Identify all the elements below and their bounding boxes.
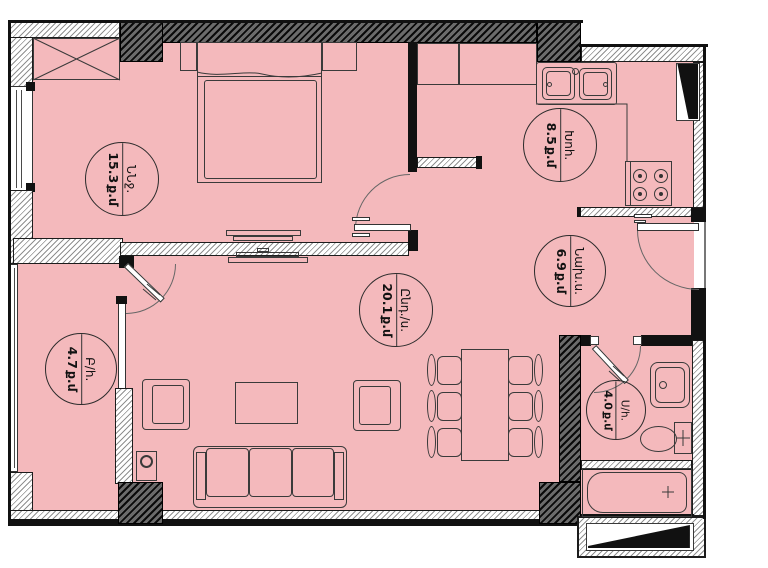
dining-chair-back bbox=[534, 426, 543, 458]
column-bathroom bbox=[539, 482, 581, 524]
burner-dot bbox=[659, 174, 663, 178]
wall-kitchen-bottom-cap bbox=[577, 207, 581, 217]
room-area: 15.3ք.մ bbox=[106, 143, 122, 215]
entrance-door-handle bbox=[634, 220, 646, 223]
wall-balcony-right bbox=[115, 388, 133, 484]
wall-bathroom-top-right bbox=[641, 335, 692, 346]
tv-stand-living bbox=[228, 257, 308, 263]
bathroom-sink-drain-icon bbox=[659, 381, 667, 389]
entrance-door-leaf bbox=[637, 223, 699, 231]
dining-chair bbox=[437, 392, 462, 421]
room-area: 6.9ք.մ bbox=[554, 236, 570, 306]
entrance-threshold-line bbox=[704, 218, 706, 290]
bedroom-door-leaf bbox=[354, 224, 411, 231]
sink-drain-icon bbox=[547, 82, 552, 87]
room-name: Խոհ. bbox=[560, 109, 576, 181]
dining-chair bbox=[437, 428, 462, 457]
shaft-wedge bbox=[587, 524, 692, 549]
outer-edge-right-lower bbox=[703, 288, 706, 519]
wall-bottom-edge bbox=[8, 519, 583, 526]
tv-bedroom bbox=[233, 236, 293, 241]
room-name: Ս/հ. bbox=[616, 381, 631, 439]
vent-shaft-wedge bbox=[677, 64, 698, 119]
sink-faucet-icon bbox=[572, 68, 579, 75]
bedroom-door-handle bbox=[352, 217, 370, 221]
kitchen-cabinet bbox=[417, 43, 459, 85]
bathtub-inner bbox=[587, 472, 687, 513]
column-top-right bbox=[537, 22, 581, 62]
room-area: 4.0ք.մ bbox=[602, 381, 616, 439]
room-label-living-room: Ընդ./ս. 20.1ք.մ bbox=[359, 273, 433, 347]
dining-chair-back bbox=[427, 390, 436, 422]
wall-bathroom-left bbox=[559, 335, 581, 482]
dining-chair bbox=[508, 428, 533, 457]
column-top-left bbox=[120, 22, 163, 62]
room-label-kitchen: Խոհ. 8.5ք.մ bbox=[523, 108, 597, 182]
wall-kitchen-stub bbox=[417, 157, 481, 168]
room-label-hallway: Նախ.ս. 6.9ք.մ bbox=[534, 235, 606, 307]
bed-headboard-line bbox=[197, 76, 322, 77]
nightstand-left bbox=[180, 42, 197, 71]
sofa-cushion bbox=[249, 448, 292, 497]
toilet-bowl bbox=[640, 426, 677, 452]
dining-chair bbox=[508, 392, 533, 421]
room-label-balcony: Բ/հ. 4.7ք.մ bbox=[45, 333, 117, 405]
wall-corner-bottom-left bbox=[10, 472, 33, 512]
sofa-cushion bbox=[292, 448, 334, 497]
room-name: Բ/հ. bbox=[81, 334, 97, 404]
floor-plan: ՆՆջ. 15.3ք.մ Խոհ. 8.5ք.մ Նախ.ս. 6.9ք.մ Ը… bbox=[0, 0, 768, 568]
burner-dot bbox=[638, 192, 642, 196]
wall-kitchen-stub-cap bbox=[476, 156, 482, 169]
coffee-table bbox=[235, 382, 298, 424]
outer-edge-top-right bbox=[579, 44, 708, 47]
dining-chair bbox=[437, 356, 462, 385]
wall-top-kitchen bbox=[581, 46, 706, 62]
stove-edge-line bbox=[630, 161, 631, 206]
heater-dial bbox=[140, 455, 153, 468]
room-label-bedroom: ՆՆջ. 15.3ք.մ bbox=[85, 142, 159, 216]
sofa-armrest bbox=[334, 452, 344, 500]
entrance-door-handle bbox=[634, 214, 652, 218]
wall-top-main bbox=[120, 22, 537, 43]
room-name: ՆՆջ. bbox=[122, 143, 138, 215]
room-name: Ընդ./ս. bbox=[396, 274, 412, 346]
bathroom-door-jamb bbox=[590, 336, 599, 345]
sink-drain-icon bbox=[603, 82, 608, 87]
sofa-cushion bbox=[206, 448, 249, 497]
dining-chair-back bbox=[427, 354, 436, 386]
bedroom-door-handle bbox=[352, 233, 370, 237]
dining-table bbox=[461, 349, 509, 461]
bathroom-door-jamb bbox=[633, 336, 642, 345]
nightstand-right bbox=[322, 42, 357, 71]
dining-chair bbox=[508, 356, 533, 385]
outer-edge-right-upper bbox=[703, 46, 706, 216]
wardrobe bbox=[33, 38, 120, 80]
sofa-armrest bbox=[196, 452, 206, 500]
shaft-box bbox=[586, 523, 694, 551]
dining-chair-back bbox=[427, 426, 436, 458]
exterior-area bbox=[581, 0, 768, 47]
room-area: 20.1ք.մ bbox=[380, 274, 396, 346]
room-name: Նախ.ս. bbox=[570, 236, 586, 306]
wall-balcony-divider bbox=[13, 238, 123, 264]
bedroom-door-jamb bbox=[408, 230, 418, 251]
outer-edge-left bbox=[8, 20, 11, 526]
bedroom-window-glass bbox=[16, 90, 22, 188]
burner-dot bbox=[638, 174, 642, 178]
kitchen-cabinet bbox=[459, 43, 537, 85]
wall-top-left bbox=[10, 22, 120, 38]
dining-chair-back bbox=[534, 354, 543, 386]
room-area: 4.7ք.մ bbox=[65, 334, 81, 404]
bed-duvet bbox=[204, 80, 317, 179]
room-area: 8.5ք.մ bbox=[544, 109, 560, 181]
dining-chair-back bbox=[534, 390, 543, 422]
column-bottom-left bbox=[118, 482, 163, 524]
room-label-bathroom: Ս/հ. 4.0ք.մ bbox=[586, 380, 646, 440]
balcony-glass-partition bbox=[118, 300, 126, 390]
armchair-seat bbox=[152, 385, 184, 424]
outer-edge-top bbox=[8, 20, 583, 23]
wall-bedroom-right bbox=[408, 42, 417, 172]
burner-dot bbox=[659, 192, 663, 196]
armchair-seat bbox=[359, 386, 391, 425]
wall-left-upper bbox=[10, 37, 33, 88]
vent-shaft-box bbox=[676, 63, 700, 121]
window-jamb bbox=[26, 82, 35, 91]
